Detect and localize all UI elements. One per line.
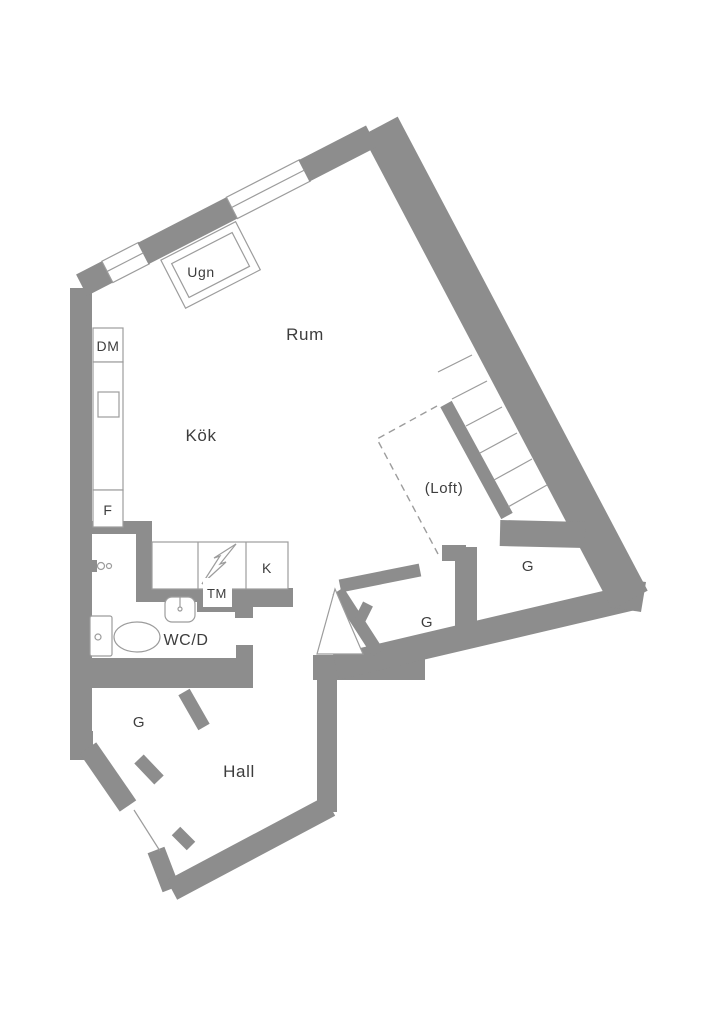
- nw-facade: [76, 125, 403, 345]
- label-hall: Hall: [223, 762, 255, 781]
- kitchen-fixtures: [93, 328, 288, 607]
- label-closet-upper: G: [522, 558, 534, 575]
- labels: Rum Kök Hall WC/D (Loft) Ugn DM F K TM G…: [97, 264, 535, 781]
- label-washer: TM: [207, 586, 227, 601]
- stair-step: [494, 459, 532, 480]
- wall-se-exterior: [336, 597, 634, 667]
- stair-step: [466, 407, 502, 426]
- floor-plan-page: Rum Kök Hall WC/D (Loft) Ugn DM F K TM G…: [0, 0, 724, 1024]
- label-freezer: F: [103, 502, 112, 518]
- label-kitchen: Kök: [185, 426, 216, 445]
- label-oven: Ugn: [187, 264, 214, 280]
- facade-pier-right: [298, 125, 377, 181]
- label-living-room: Rum: [286, 325, 324, 344]
- wall-hall-closet-jamb: [184, 692, 204, 727]
- wall-mid-closet-top: [340, 570, 420, 586]
- wall-entrance-jamb-2: [176, 831, 191, 846]
- floor-plan-svg: Rum Kök Hall WC/D (Loft) Ugn DM F K TM G…: [0, 0, 724, 1024]
- toilet-bowl: [114, 622, 160, 652]
- wall-stair-foot: [500, 533, 585, 535]
- label-bathroom: WC/D: [163, 632, 208, 649]
- wall-knob-base: [88, 560, 97, 572]
- kitchen-counter-strip: [93, 362, 123, 490]
- wall-wc-bottom-stub: [236, 645, 253, 660]
- entrance-door-swing: [134, 810, 160, 851]
- stair-step: [452, 381, 487, 399]
- wall-under-fridge: [233, 588, 293, 607]
- label-loft: (Loft): [425, 480, 464, 497]
- stair-step: [508, 485, 547, 507]
- stair-step: [480, 433, 517, 453]
- kitchen-sink: [98, 392, 119, 417]
- wall-entrance-jamb-1: [139, 759, 159, 780]
- label-closet-hall: G: [133, 714, 145, 731]
- label-fridge: K: [262, 560, 272, 576]
- wall-knob-icon: [98, 563, 105, 570]
- label-dishwasher: DM: [97, 338, 120, 354]
- stair-step: [438, 355, 472, 372]
- wall-hall-bottom: [172, 806, 330, 890]
- wall-sw-angled: [88, 748, 128, 806]
- wall-mid-closet-jamb: [360, 604, 368, 620]
- label-closet-mid: G: [421, 614, 433, 631]
- wall-knob-icon-2: [107, 564, 112, 569]
